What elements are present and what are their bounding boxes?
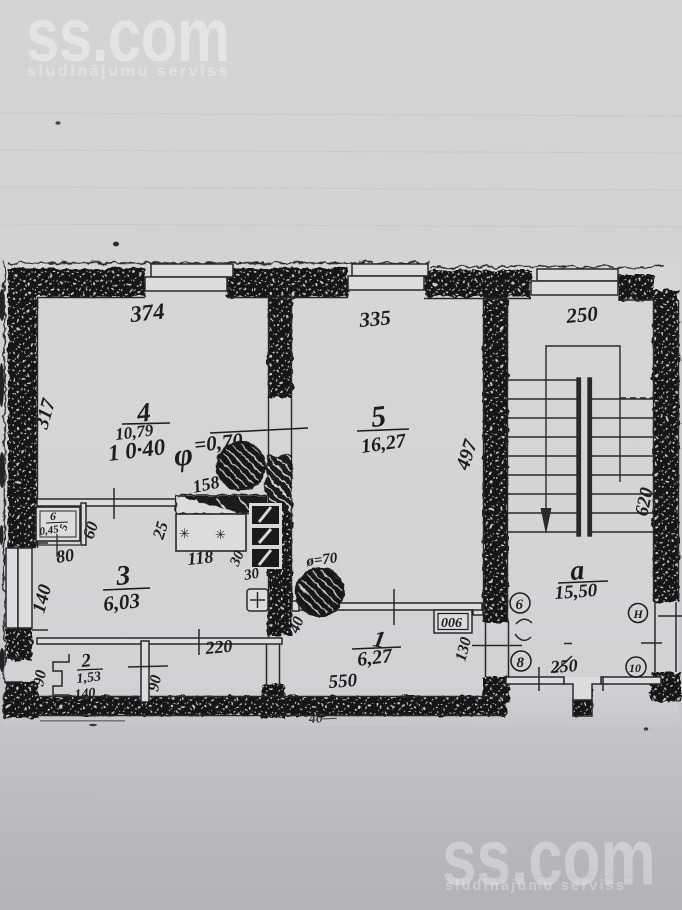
svg-text:006: 006 (441, 616, 462, 631)
svg-text:φ: φ (172, 435, 194, 472)
svg-text:250: 250 (549, 655, 578, 677)
svg-text:10: 10 (629, 661, 641, 675)
svg-text:6: 6 (516, 597, 524, 613)
svg-text:3: 3 (114, 560, 132, 592)
svg-text:H: H (633, 607, 644, 621)
svg-text:6: 6 (50, 509, 56, 523)
svg-text:40—: 40— (307, 711, 337, 727)
svg-text:8: 8 (517, 655, 525, 671)
svg-text:80: 80 (55, 545, 76, 567)
svg-text:6,27: 6,27 (356, 645, 394, 671)
svg-text:✳: ✳ (179, 526, 190, 541)
svg-text:250: 250 (564, 301, 599, 328)
svg-text:118: 118 (186, 546, 214, 569)
svg-text:6,03: 6,03 (102, 588, 141, 616)
svg-text:30: 30 (242, 565, 261, 584)
svg-text:335: 335 (357, 305, 391, 332)
svg-text:1,53: 1,53 (76, 669, 102, 686)
svg-text:374: 374 (128, 299, 166, 328)
svg-text:220: 220 (204, 636, 234, 658)
svg-text:550: 550 (328, 670, 358, 693)
svg-text:15,50: 15,50 (554, 580, 599, 604)
svg-text:140: 140 (74, 686, 96, 703)
svg-text:✳: ✳ (215, 527, 226, 542)
